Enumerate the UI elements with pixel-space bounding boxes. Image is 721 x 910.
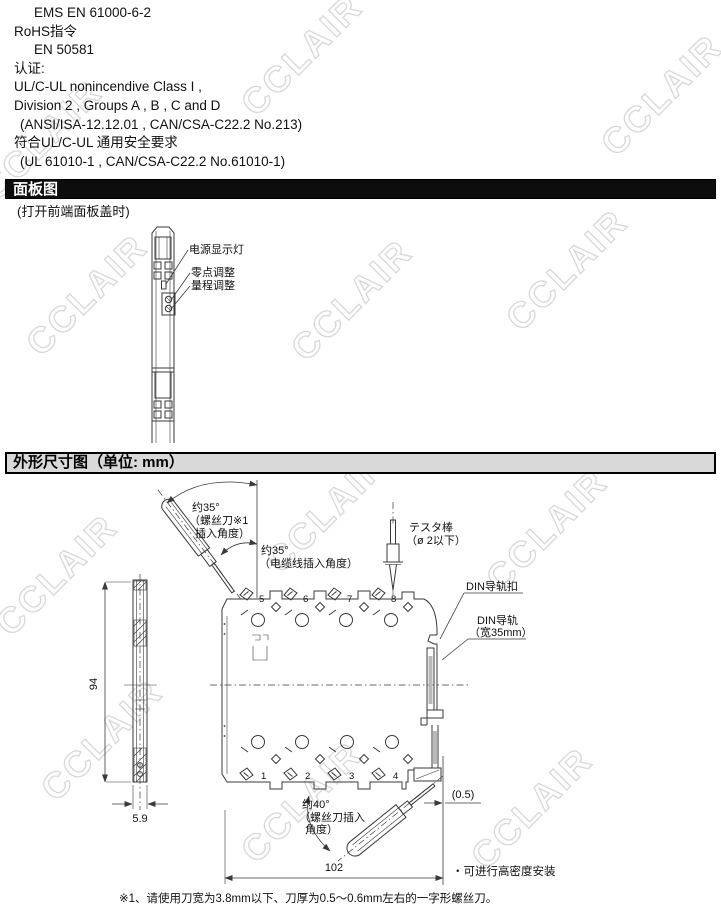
label-power-led: 电源显示灯 (189, 242, 244, 256)
cert-line: UL/C-UL nonincendive Class I , (14, 78, 302, 97)
label-din-clip: DIN导轨扣 (466, 579, 518, 593)
power-led (162, 281, 167, 289)
dimension-5-9: 5.9 (112, 785, 168, 825)
label-cable-angle: （电缆线插入角度） (259, 556, 358, 570)
side-view-drawing (124, 574, 157, 810)
cert-line: 符合UL/C-UL 通用安全要求 (14, 134, 302, 153)
label-screwdriver-angle-bottom: 约40° (302, 798, 330, 811)
footnote: ※1、请使用刀宽为3.8mm以下、刀厚为0.5～0.6mm左右的一字形螺丝刀。 (119, 890, 497, 906)
cert-line: (ANSI/ISA-12.12.01 , CAN/CSA-C22.2 No.21… (20, 116, 302, 135)
terminal-number: 8 (391, 594, 396, 605)
label-tester-probe: （ø 2以下） (406, 534, 466, 547)
watermark: CCLAIR (498, 201, 637, 340)
watermark: CCLAIR (593, 26, 721, 165)
label-screwdriver-angle-top: 约35° (192, 501, 220, 514)
label-screwdriver-angle-bottom: 角度） (305, 822, 338, 836)
label-screwdriver-angle-top: （螺丝刀※1 (189, 514, 248, 527)
label-din-rail: （宽35mm） (469, 625, 533, 639)
label-tester-probe: テスタ棒 (409, 520, 453, 534)
panel-module-drawing (152, 227, 175, 443)
cert-line: EN 50581 (34, 41, 302, 60)
section-header-dimensions: 外形尺寸图（单位: mm） (5, 452, 716, 474)
terminal-number: 1 (261, 771, 266, 782)
terminal-number: 5 (259, 594, 264, 605)
dimension-figure: 94 5.9 (0, 478, 721, 890)
label-din-rail: DIN导轨 (477, 613, 518, 627)
dimension-94: 94 (88, 582, 131, 782)
terminal-number: 3 (349, 771, 354, 782)
cert-line: EMS EN 61000-6-2 (34, 4, 302, 23)
dim-height-value: 94 (88, 678, 100, 690)
tester-probe (383, 502, 403, 596)
label-span-adjust: 量程调整 (191, 278, 235, 292)
label-screwdriver-angle-bottom: （螺丝刀插入 (299, 810, 365, 824)
dim-gap-value: (0.5) (452, 789, 475, 801)
terminal-number: 4 (393, 771, 398, 782)
certification-block: EMS EN 61000-6-2 RoHS指令 EN 50581 认证: UL/… (14, 4, 302, 171)
high-density-note: ・可进行高密度安装 (452, 864, 556, 878)
cert-line: 认证: (14, 60, 302, 79)
terminal-number: 7 (347, 594, 352, 605)
panel-view-figure: 电源显示灯 零点调整 量程调整 (0, 225, 400, 455)
dim-depth-value: 5.9 (132, 813, 147, 825)
section-header-panel-view: 面板图 (5, 179, 716, 199)
terminal-number: 2 (305, 771, 310, 782)
panel-subtitle: (打开前端面板盖时) (17, 201, 130, 220)
cert-line: Division 2 , Groups A , B , C and D (14, 97, 302, 116)
label-screwdriver-angle-top: 插入角度） (195, 526, 250, 540)
cert-line: (UL 61010-1 , CAN/CSA-C22.2 No.61010-1) (20, 153, 302, 172)
dim-width-value: 102 (325, 862, 343, 874)
datasheet-page: CCLAIR CCLAIR CCLAIR CCLAIR CCLAIR CCLAI… (0, 0, 721, 910)
screwdriver-top (158, 480, 257, 602)
label-zero-adjust: 零点调整 (191, 265, 235, 279)
cert-line: RoHS指令 (14, 23, 302, 42)
label-cable-angle: 约35° (261, 544, 289, 557)
din-rail-section (414, 635, 443, 781)
terminal-number: 6 (303, 594, 308, 605)
